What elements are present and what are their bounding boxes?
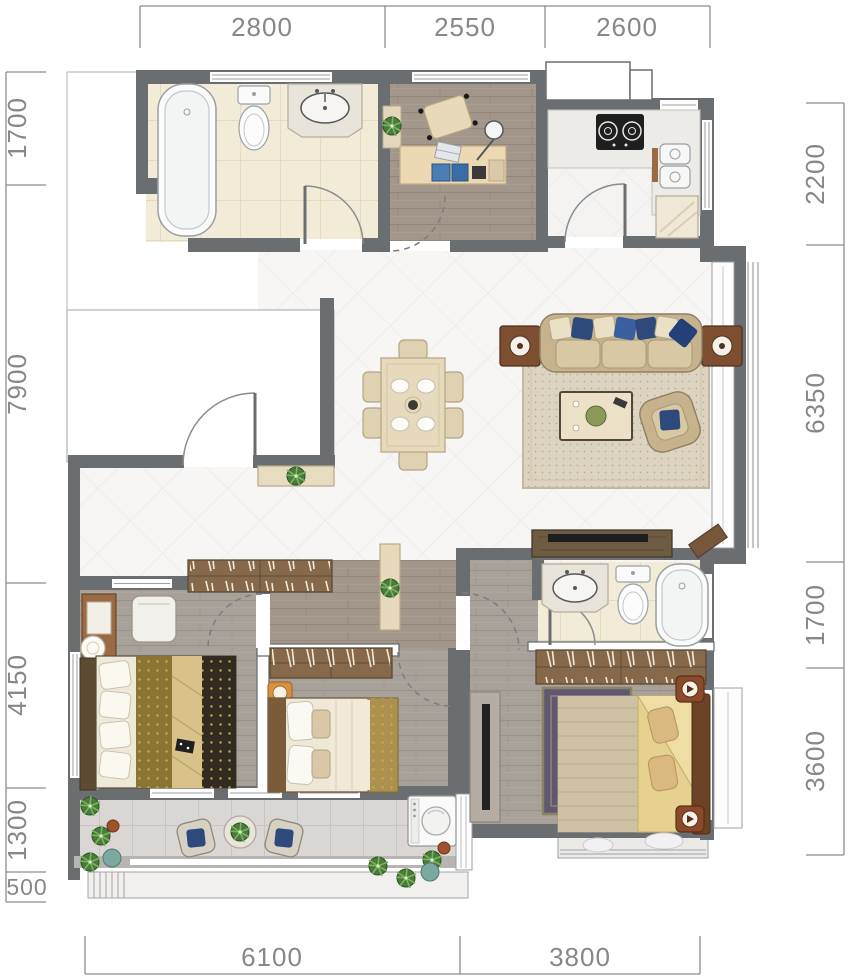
tv-icon	[482, 704, 490, 810]
kitchen-flue	[546, 62, 630, 100]
dim-label-top-2: 2550	[434, 12, 496, 42]
dim-label-right-3: 1700	[800, 584, 830, 646]
stove-icon	[596, 114, 644, 150]
dim-label-bottom-2: 3800	[549, 942, 611, 972]
basin-icon	[542, 564, 608, 612]
desk-item-dark	[472, 166, 486, 179]
dim-label-right-1: 2200	[800, 143, 830, 205]
dim-label-left-5: 500	[6, 874, 47, 900]
desk-lamp-icon	[485, 121, 503, 139]
dim-label-top-3: 2600	[596, 12, 658, 42]
sofa-icon	[540, 314, 702, 372]
dimension-top: 2800 2550 2600	[140, 6, 710, 48]
dim-label-left-4: 1300	[2, 799, 32, 861]
toilet-icon	[616, 566, 650, 624]
dim-label-left-2: 7900	[2, 353, 32, 415]
side-table-icon	[500, 326, 540, 366]
washing-machine-icon	[408, 796, 456, 846]
dimension-bottom: 6100 3800	[85, 936, 700, 974]
bedroom2-furniture	[268, 648, 398, 792]
bed-icon	[268, 698, 398, 792]
nightstand-icon	[676, 676, 704, 702]
wardrobe-icon	[270, 648, 392, 678]
dim-label-left-3: 4150	[2, 654, 32, 716]
basin-icon	[288, 84, 362, 137]
balcony-chair-icon	[263, 817, 304, 858]
tv-icon	[548, 534, 648, 542]
kitchen-sink-icon	[652, 144, 690, 188]
side-table-icon-2	[702, 326, 742, 366]
boundary-line	[67, 72, 140, 310]
tv-cabinet-icon	[470, 692, 500, 822]
bay-window-lines	[748, 262, 758, 548]
dim-label-bottom-1: 6100	[241, 942, 303, 972]
dimension-left: 1700 7900 4150 1300 500	[2, 72, 48, 902]
chair-icon	[132, 596, 176, 642]
dim-label-right-4: 3600	[800, 730, 830, 792]
floor-plan-drawing: 2800 2550 2600 1700 7900 4150 1300 500 2…	[0, 0, 850, 980]
nightstand-icon	[676, 806, 704, 832]
toilet-icon	[238, 86, 270, 150]
entry-void	[67, 310, 334, 462]
floor-plan-page: 2800 2550 2600 1700 7900 4150 1300 500 2…	[0, 0, 850, 980]
bathtub-icon	[656, 564, 708, 646]
desk-item-beige	[489, 160, 504, 181]
balcony-window-band	[130, 859, 440, 865]
bed-icon	[80, 656, 236, 790]
dim-label-right-2: 6350	[800, 372, 830, 434]
tv-console-icon	[532, 530, 672, 557]
bathtub-icon	[158, 84, 216, 236]
fridge-icon	[656, 196, 698, 238]
books-blue-2	[452, 164, 468, 181]
books-blue	[432, 164, 450, 181]
wardrobe-icon	[188, 560, 332, 592]
dim-label-left-1: 1700	[2, 97, 32, 159]
coffee-table-icon	[560, 392, 632, 440]
balcony-chair-icon	[175, 817, 216, 858]
dim-label-top-1: 2800	[231, 12, 293, 42]
dimension-right: 2200 6350 1700 3600	[800, 103, 844, 855]
